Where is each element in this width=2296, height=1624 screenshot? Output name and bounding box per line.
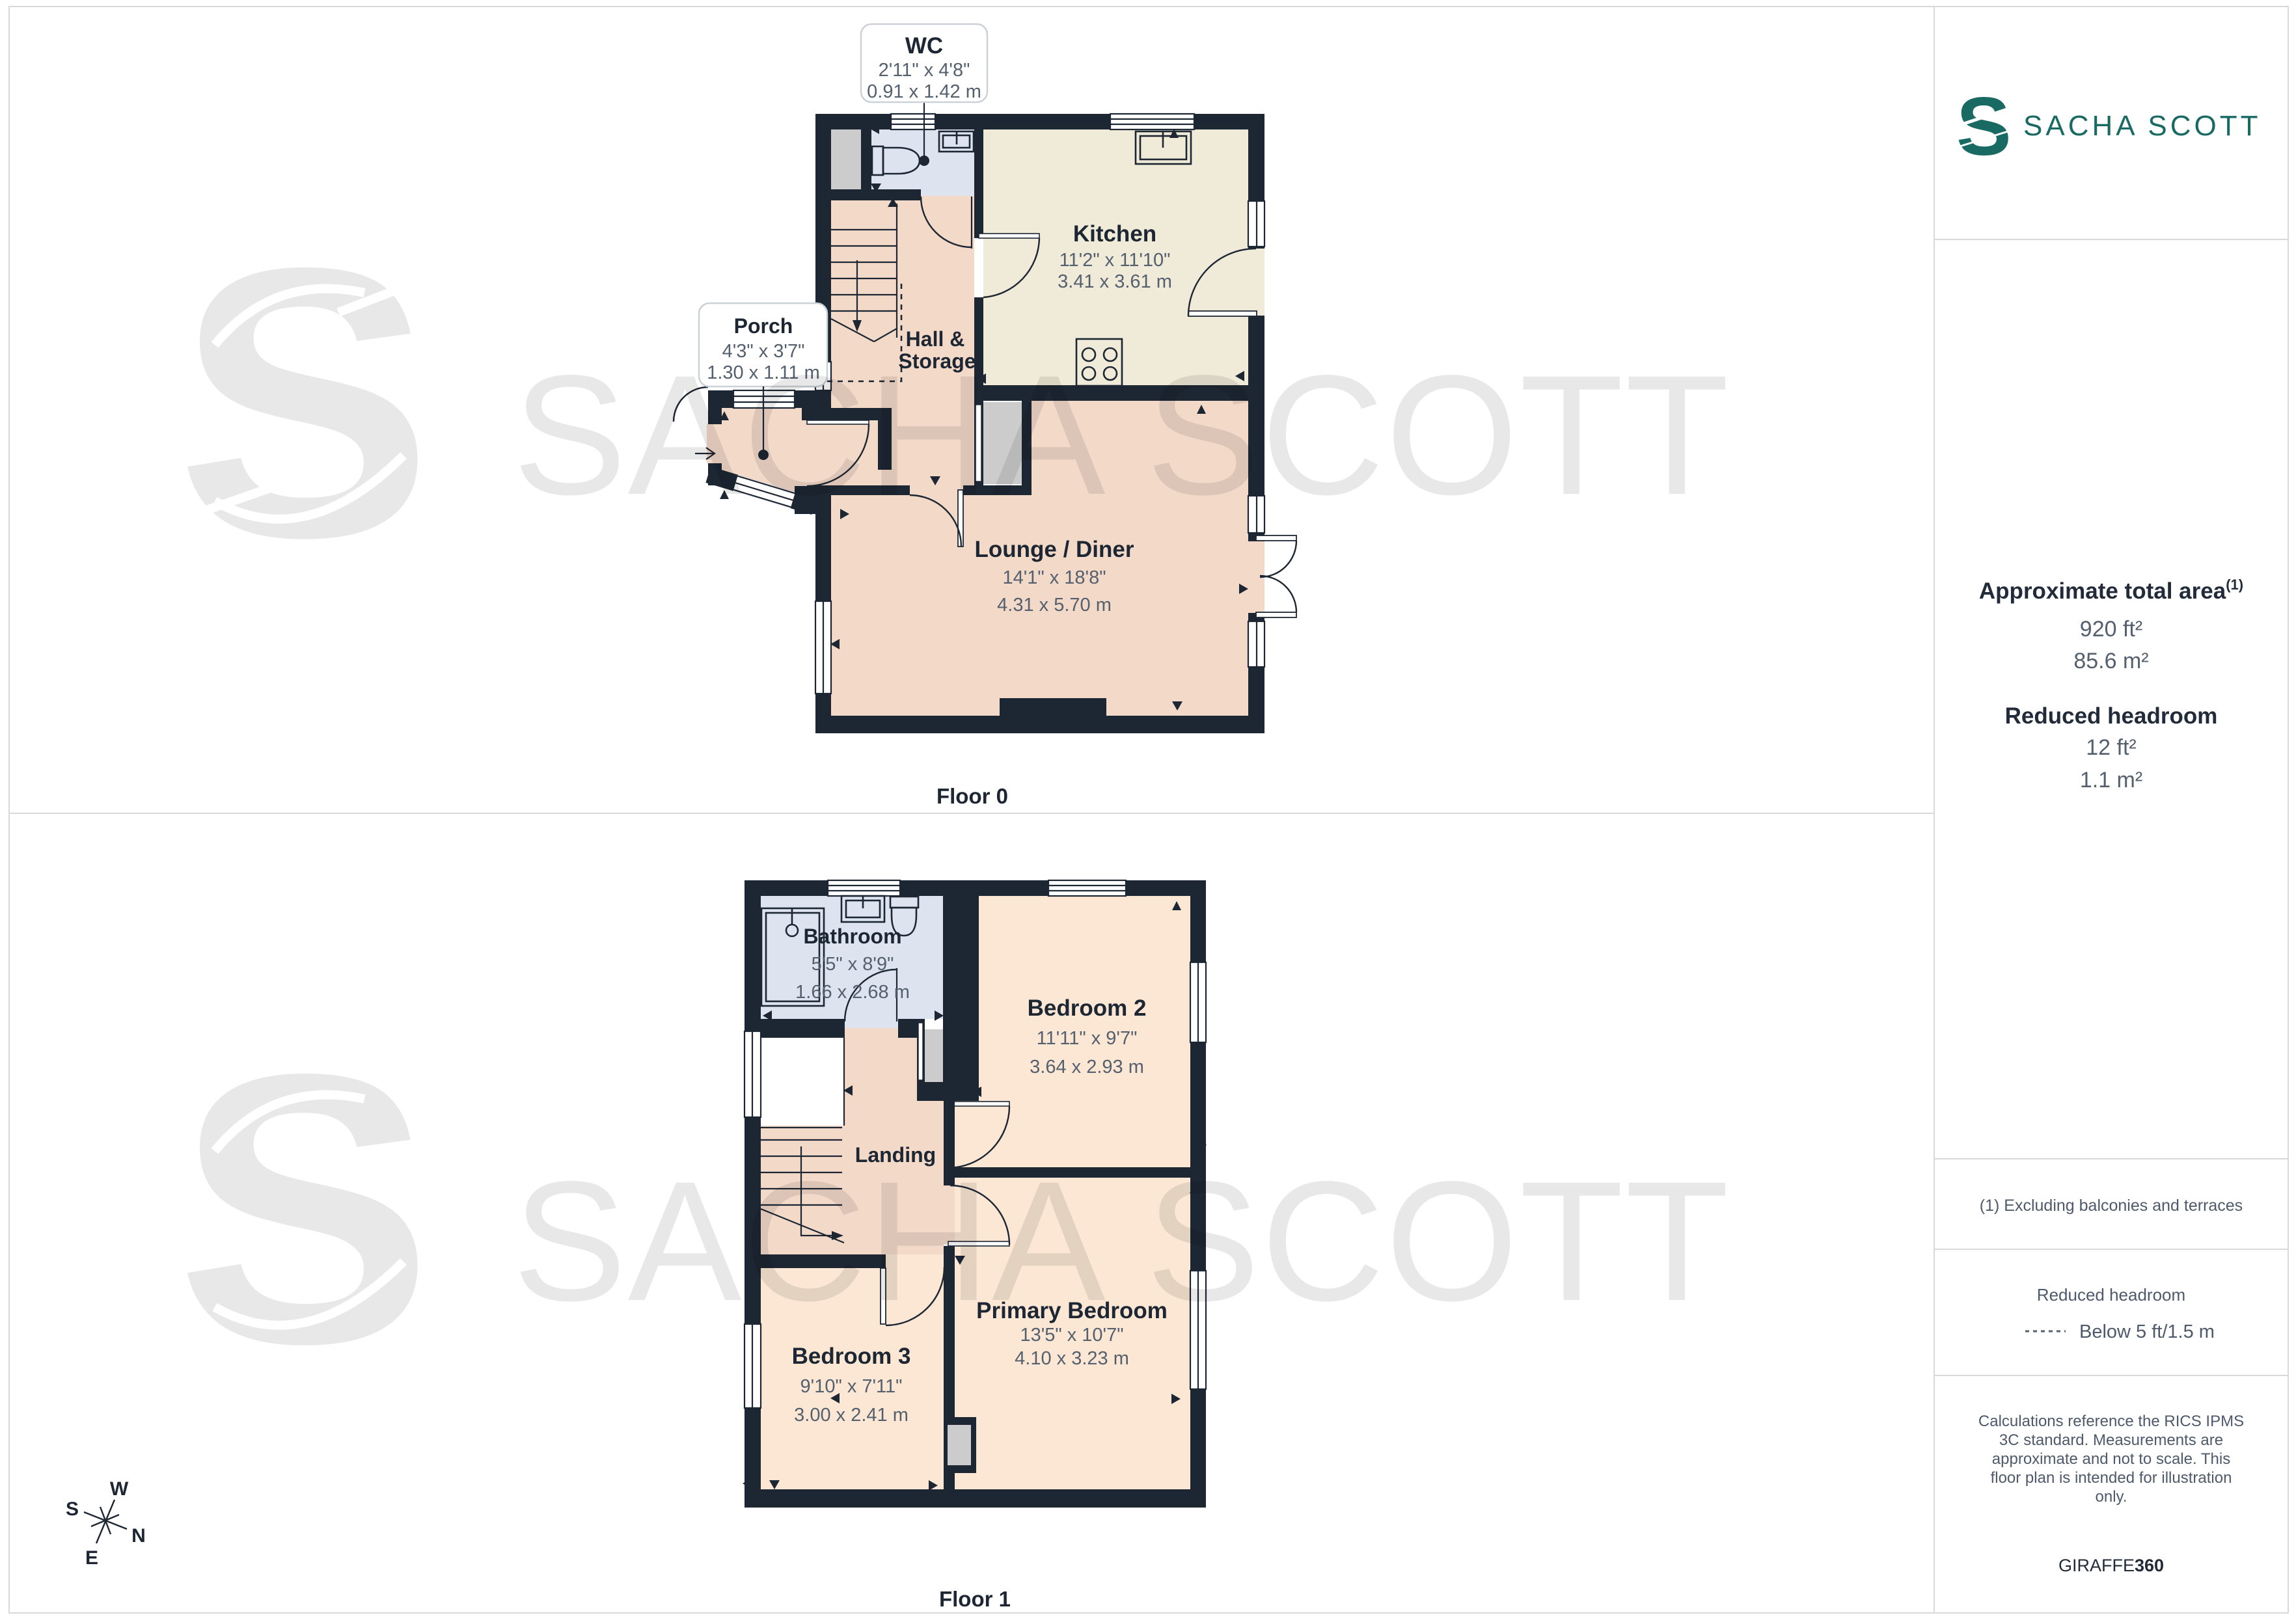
svg-text:N: N (131, 1525, 146, 1547)
svg-text:3.00 x 2.41 m: 3.00 x 2.41 m (794, 1405, 909, 1426)
svg-text:S: S (176, 189, 433, 617)
svg-text:3.41 x 3.61 m: 3.41 x 3.61 m (1058, 271, 1172, 292)
svg-text:Storage: Storage (898, 349, 976, 373)
svg-text:4.10 x 3.23 m: 4.10 x 3.23 m (1015, 1348, 1129, 1369)
svg-text:85.6 m²: 85.6 m² (2073, 649, 2148, 673)
svg-text:9'10" x 7'11": 9'10" x 7'11" (800, 1376, 903, 1397)
svg-text:WC: WC (905, 33, 943, 59)
svg-text:11'11" x 9'7": 11'11" x 9'7" (1037, 1028, 1138, 1049)
svg-text:Porch: Porch (734, 314, 793, 338)
svg-text:3.64 x 2.93 m: 3.64 x 2.93 m (1030, 1057, 1144, 1077)
svg-text:S: S (1956, 80, 2012, 172)
svg-text:0.91 x 1.42 m: 0.91 x 1.42 m (867, 81, 981, 102)
svg-text:Bedroom 2: Bedroom 2 (1028, 995, 1147, 1021)
svg-text:Bedroom 3: Bedroom 3 (792, 1344, 911, 1369)
svg-text:14'1" x 18'8": 14'1" x 18'8" (1002, 567, 1106, 588)
svg-text:1.1 m²: 1.1 m² (2080, 768, 2142, 792)
svg-text:only.: only. (2096, 1488, 2127, 1506)
svg-text:2'11" x 4'8": 2'11" x 4'8" (879, 60, 970, 81)
svg-text:E: E (85, 1547, 98, 1569)
svg-text:Hall &: Hall & (906, 327, 965, 351)
svg-text:Primary Bedroom: Primary Bedroom (976, 1298, 1168, 1323)
svg-text:Lounge / Diner: Lounge / Diner (975, 537, 1134, 562)
svg-text:(1) Excluding balconies and te: (1) Excluding balconies and terraces (1980, 1197, 2243, 1215)
svg-text:920 ft²: 920 ft² (2080, 617, 2142, 642)
svg-text:Below 5 ft/1.5 m: Below 5 ft/1.5 m (2079, 1321, 2215, 1342)
svg-text:W: W (110, 1478, 129, 1500)
svg-text:Reduced headroom: Reduced headroom (2037, 1285, 2185, 1305)
svg-text:13'5" x 10'7": 13'5" x 10'7" (1020, 1325, 1123, 1346)
svg-text:GIRAFFE360: GIRAFFE360 (2058, 1556, 2164, 1575)
svg-text:3C standard. Measurements are: 3C standard. Measurements are (1999, 1431, 2223, 1449)
svg-text:S: S (66, 1498, 79, 1520)
svg-text:4'3" x 3'7": 4'3" x 3'7" (722, 341, 805, 362)
svg-text:12 ft²: 12 ft² (2086, 735, 2136, 760)
svg-text:floor plan is intended for ill: floor plan is intended for illustration (1991, 1469, 2232, 1487)
svg-text:S: S (176, 995, 433, 1424)
svg-text:5'5" x 8'9": 5'5" x 8'9" (812, 954, 894, 975)
svg-text:Bathroom: Bathroom (803, 925, 901, 948)
svg-text:4.31 x 5.70 m: 4.31 x 5.70 m (997, 595, 1112, 616)
svg-text:Kitchen: Kitchen (1073, 221, 1156, 247)
svg-text:Floor 0: Floor 0 (936, 784, 1008, 808)
svg-text:Calculations reference the RIC: Calculations reference the RICS IPMS (1978, 1413, 2244, 1430)
svg-text:approximate and not to scale.: approximate and not to scale. This (1992, 1450, 2230, 1468)
svg-text:Approximate total area(1): Approximate total area(1) (1979, 576, 2243, 604)
svg-text:1.66 x 2.68 m: 1.66 x 2.68 m (795, 982, 910, 1003)
svg-text:1.30 x 1.11 m: 1.30 x 1.11 m (707, 362, 820, 383)
svg-text:11'2" x 11'10": 11'2" x 11'10" (1059, 250, 1171, 271)
svg-text:Floor 1: Floor 1 (939, 1587, 1011, 1611)
svg-text:SACHA SCOTT: SACHA SCOTT (2023, 110, 2262, 142)
svg-text:Landing: Landing (855, 1143, 936, 1167)
svg-text:Reduced headroom: Reduced headroom (2005, 703, 2218, 729)
